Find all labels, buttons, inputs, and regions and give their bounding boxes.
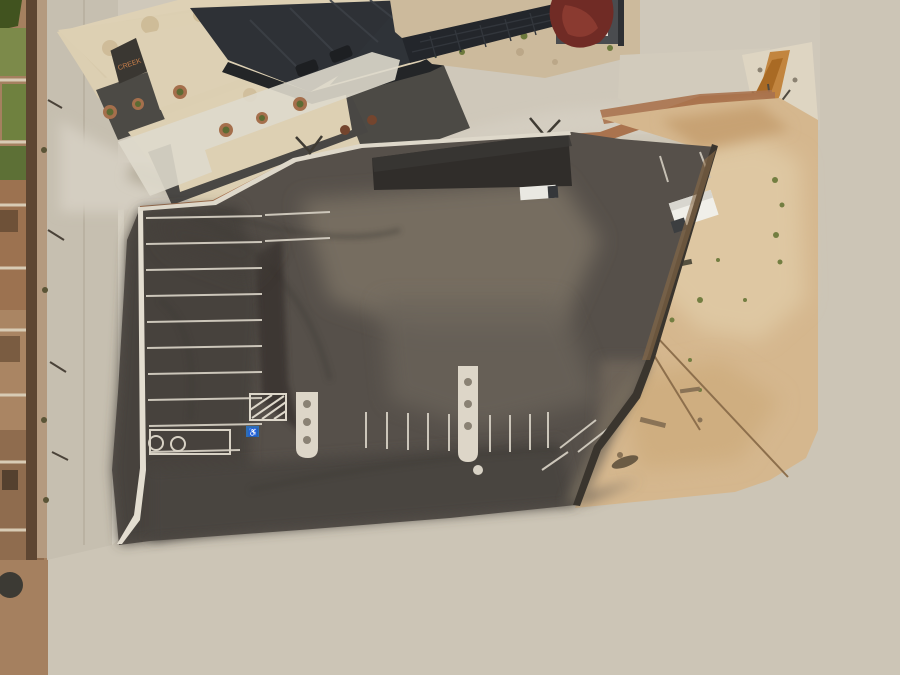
svg-text:♿: ♿	[248, 427, 258, 437]
